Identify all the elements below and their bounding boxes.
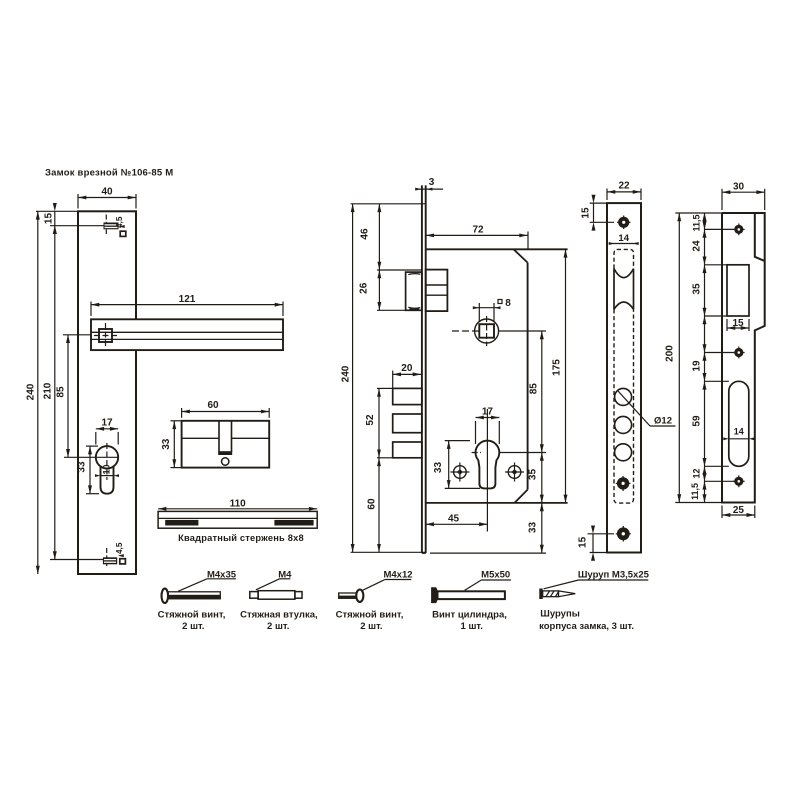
svg-text:121: 121 [179,294,196,305]
svg-text:11,5: 11,5 [690,483,700,500]
svg-text:240: 240 [26,383,37,400]
svg-text:35: 35 [527,469,538,481]
svg-text:корпуса замка, 3 шт.: корпуса замка, 3 шт. [539,621,634,632]
svg-text:2 шт.: 2 шт. [267,621,289,632]
svg-text:2 шт.: 2 шт. [360,621,382,632]
svg-text:59: 59 [691,415,702,427]
svg-text:46: 46 [359,228,370,240]
svg-text:4,5: 4,5 [115,542,124,554]
svg-text:Шуруп М3,5х25: Шуруп М3,5х25 [578,569,650,580]
svg-text:Стяжная втулка,: Стяжная втулка, [240,610,317,621]
svg-text:19: 19 [691,360,702,372]
svg-text:35: 35 [691,283,702,295]
svg-text:22: 22 [618,181,630,192]
svg-text:110: 110 [230,498,247,509]
svg-text:52: 52 [365,414,376,426]
svg-text:33: 33 [77,461,88,473]
svg-text:14: 14 [618,233,629,244]
svg-text:33: 33 [161,438,172,450]
svg-text:85: 85 [528,383,539,395]
svg-text:3: 3 [429,177,435,188]
svg-text:М5х50: М5х50 [481,569,510,580]
svg-text:2 шт.: 2 шт. [182,621,204,632]
svg-text:60: 60 [207,400,219,411]
svg-text:33: 33 [527,522,538,534]
svg-text:14: 14 [734,427,744,437]
svg-text:240: 240 [340,365,351,382]
svg-text:Шурупы: Шурупы [540,609,580,620]
svg-text:15: 15 [577,536,588,548]
svg-text:Стяжной винт,: Стяжной винт, [336,610,404,621]
svg-text:17: 17 [101,418,113,429]
svg-text:11,5: 11,5 [691,214,701,231]
svg-text:Стяжной винт,: Стяжной винт, [158,610,226,621]
svg-text:20: 20 [401,363,413,374]
svg-text:200: 200 [665,345,676,362]
svg-text:26: 26 [358,282,369,294]
svg-text:10: 10 [102,464,112,474]
svg-text:40: 40 [101,186,113,197]
svg-text:210: 210 [43,382,54,399]
svg-text:15: 15 [581,207,592,219]
svg-text:45: 45 [448,513,460,524]
svg-text:72: 72 [472,224,484,235]
svg-text:8: 8 [505,298,511,309]
svg-text:Ø12: Ø12 [654,416,672,427]
svg-text:175: 175 [552,359,563,376]
svg-text:60: 60 [366,498,377,510]
svg-text:15: 15 [44,213,55,225]
svg-text:85: 85 [56,386,67,398]
svg-text:1 шт.: 1 шт. [461,621,483,632]
svg-text:33: 33 [433,462,444,474]
svg-text:М4х12: М4х12 [383,570,412,581]
svg-text:24: 24 [691,240,702,252]
svg-text:25: 25 [733,505,745,516]
svg-text:Винт цилиндра,: Винт цилиндра, [432,610,507,621]
svg-text:Квадратный стержень 8х8: Квадратный стержень 8х8 [178,533,304,543]
svg-text:15: 15 [732,318,744,329]
svg-text:12: 12 [691,468,701,478]
svg-text:Замок врезной №106-85 М: Замок врезной №106-85 М [45,168,173,179]
svg-text:30: 30 [733,181,745,192]
